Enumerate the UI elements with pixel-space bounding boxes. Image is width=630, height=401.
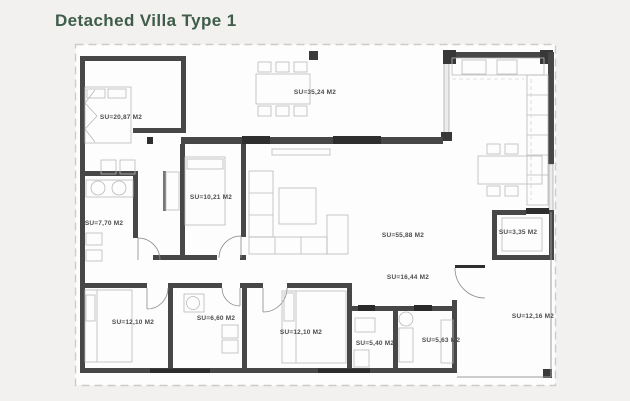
floorplan-page: Detached Villa Type 1 [0, 0, 630, 401]
room-area-label-terrace-right: SU=12,16 M2 [512, 314, 554, 321]
room-area-label-bathroom-small-left: SU=5,40 M2 [356, 341, 394, 348]
room-area-label-storage-right: SU=3,35 M2 [499, 230, 537, 237]
room-area-label-corridor: SU=16,44 M2 [387, 275, 429, 282]
room-area-label-dining-terrace-top: SU=35,24 M2 [294, 90, 336, 97]
room-area-label-bedroom-bottom-left: SU=12,10 M2 [112, 320, 154, 327]
floorplan-drawing [0, 0, 630, 401]
room-area-label-bedroom-middle: SU=10,21 M2 [190, 195, 232, 202]
room-area-label-bathroom-middle: SU=6,60 M2 [197, 316, 235, 323]
room-area-label-bedroom-top-left: SU=20,87 M2 [100, 115, 142, 122]
room-area-label-bedroom-bottom-center: SU=12,10 M2 [280, 330, 322, 337]
room-area-label-living-room: SU=55,88 M2 [382, 233, 424, 240]
room-area-label-bathroom-small-right: SU=5,63 M2 [422, 338, 460, 345]
room-area-label-bathroom-left: SU=7,70 M2 [85, 221, 123, 228]
